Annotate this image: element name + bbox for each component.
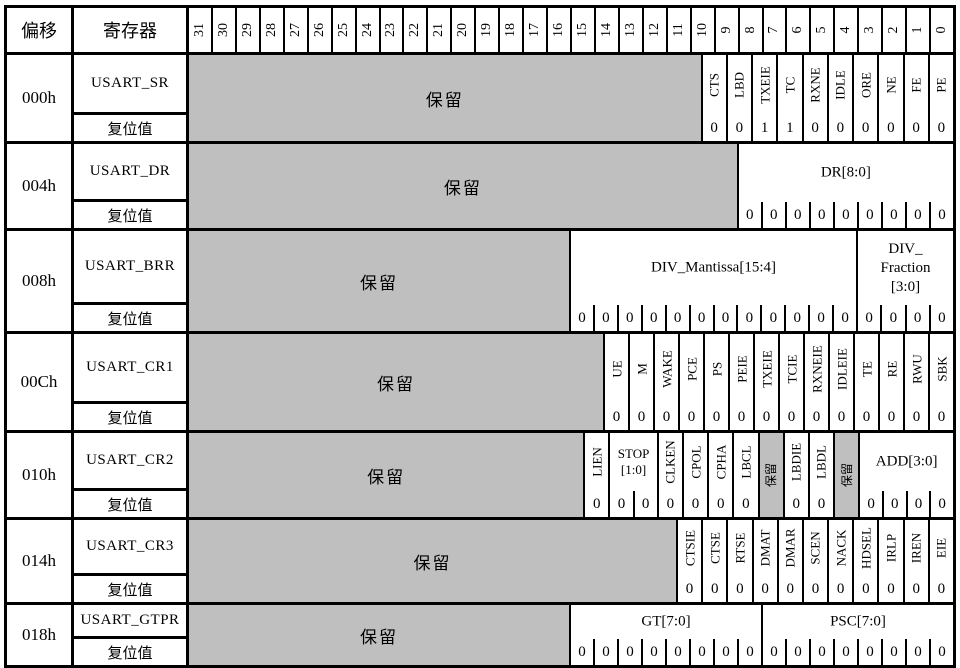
bit-number-cell: 17 <box>522 8 546 52</box>
bit-field-name: DIV_Mantissa[15:4] <box>571 231 856 305</box>
bit-field-reset-row: 0 <box>930 115 953 141</box>
bit-field-name: SCEN <box>804 520 827 576</box>
register-name: USART_CR1 <box>74 334 186 401</box>
reset-value-label: 复位值 <box>74 401 186 430</box>
bit-field-label: LBDIE <box>790 443 803 481</box>
bit-field-label: CTSIE <box>683 530 696 566</box>
register-row: 00ChUSART_CR1复位值保留UE0M0WAKE0PCE0PS0PEIE0… <box>7 331 953 430</box>
bit-fields-area: 保留GT[7:0]00000000PSC[7:0]00000000 <box>189 605 953 665</box>
bit-field-reset-row: 0 <box>905 115 928 141</box>
bit-number-label: 21 <box>432 23 446 37</box>
bit-field-name: TE <box>855 334 878 404</box>
bit-field: 保留 <box>758 433 783 517</box>
reset-bit-value: 0 <box>755 404 778 430</box>
reset-bit-value: 0 <box>857 202 881 228</box>
bit-field-reset-row: 0 <box>804 115 827 141</box>
reset-bit-value: 0 <box>830 404 853 430</box>
bit-field: LBD0 <box>726 55 751 141</box>
reset-bit-value: 0 <box>684 491 707 517</box>
reset-bit-value: 0 <box>881 202 905 228</box>
bit-number-label: 19 <box>480 23 494 37</box>
bit-number-label: 9 <box>720 27 734 34</box>
bit-field-reset-row: 0 <box>810 491 833 517</box>
reset-bit-value: 0 <box>617 639 641 665</box>
bit-number-cell: 1 <box>905 8 929 52</box>
bit-number-cell: 21 <box>426 8 450 52</box>
reserved-label: 保留 <box>189 605 569 665</box>
bit-field-reset-row: 0 <box>855 404 878 430</box>
bit-field-name: STOP [1:0] <box>610 433 656 491</box>
bit-number-label: 22 <box>408 23 422 37</box>
bit-number-label: 8 <box>744 27 758 34</box>
reset-bit-value: 0 <box>929 491 953 517</box>
reset-bit-value: 0 <box>728 576 751 602</box>
register-cell: USART_CR1复位值 <box>74 334 189 430</box>
reset-bit-value: 0 <box>880 404 903 430</box>
register-name: USART_CR2 <box>74 433 186 488</box>
bit-field-name: PE <box>930 55 953 115</box>
reset-bit-value: 0 <box>689 639 713 665</box>
bit-field-name: HDSEL <box>854 520 877 576</box>
reset-bit-value: 0 <box>929 202 953 228</box>
bit-field-reset-row: 0 <box>880 404 903 430</box>
bit-field: UE0 <box>603 334 628 430</box>
bit-field: 保留 <box>833 433 858 517</box>
reset-bit-value: 0 <box>659 491 682 517</box>
bit-number-label: 17 <box>528 23 542 37</box>
offset-cell: 000h <box>7 55 74 141</box>
reset-bit-value: 0 <box>809 202 833 228</box>
bit-field-label: RTSE <box>733 532 746 563</box>
bit-field-name: LBCL <box>734 433 757 491</box>
bit-field: TXEIE1 <box>751 55 776 141</box>
bit-field: DIV_ Fraction [3:0]0000 <box>856 231 953 331</box>
bit-field-reset-row: 00000000 <box>571 639 761 665</box>
bit-field: STOP [1:0]00 <box>608 433 656 517</box>
bit-field-name: CTS <box>703 55 726 115</box>
bit-field-label: TXEIE <box>760 350 773 388</box>
bit-field-name: RTSE <box>728 520 751 576</box>
bit-number-cell: 12 <box>642 8 666 52</box>
bit-field: TCIE0 <box>778 334 803 430</box>
bit-field: IDLEIE0 <box>828 334 853 430</box>
bit-field-name: EIE <box>930 520 953 576</box>
reserved-bit-cell: 保留 <box>835 433 858 517</box>
bit-number-label: 0 <box>935 27 949 34</box>
bit-field-name: TCIE <box>780 334 803 404</box>
bit-number-cell: 29 <box>235 8 259 52</box>
reset-bit-value: 0 <box>571 639 593 665</box>
reset-bit-value: 0 <box>713 639 737 665</box>
register-row: 018hUSART_GTPR复位值保留GT[7:0]00000000PSC[7:… <box>7 602 953 665</box>
reset-bit-value: 0 <box>905 202 929 228</box>
offset-cell: 008h <box>7 231 74 331</box>
register-cell: USART_DR复位值 <box>74 144 189 228</box>
bit-field: PS0 <box>703 334 728 430</box>
bit-field-name: IRLP <box>879 520 902 576</box>
reserved-label: 保留 <box>189 334 603 430</box>
bit-field-label: TXEIE <box>758 66 771 104</box>
bit-field-label: IRLP <box>885 534 898 562</box>
bit-field-reset-row: 1 <box>778 115 801 141</box>
reset-bit-value: 0 <box>930 576 953 602</box>
bit-number-label: 6 <box>791 27 805 34</box>
bit-field-label: GT[7:0] <box>571 613 761 632</box>
bit-field: 保留 <box>189 231 569 331</box>
bit-fields-area: 保留UE0M0WAKE0PCE0PS0PEIE0TXEIE0TCIE0RXNEI… <box>189 334 953 430</box>
bit-field-reset-row: 0000 <box>858 305 953 331</box>
bit-field: LBDIE0 <box>783 433 808 517</box>
bit-number-cell: 26 <box>307 8 331 52</box>
bit-field-name: IDLEIE <box>830 334 853 404</box>
bit-field: PE0 <box>928 55 953 141</box>
bit-number-cell: 13 <box>618 8 642 52</box>
reset-bit-value: 0 <box>905 576 928 602</box>
bit-field-name: LBDIE <box>785 433 808 491</box>
bit-field: CTS0 <box>701 55 726 141</box>
bit-field: DIV_Mantissa[15:4]000000000000 <box>569 231 856 331</box>
bit-field-name: GT[7:0] <box>571 605 761 639</box>
reset-bit-value: 0 <box>736 305 760 331</box>
reset-bit-value: 0 <box>881 639 905 665</box>
bit-field-name: UE <box>605 334 628 404</box>
bit-number-label: 24 <box>361 23 375 37</box>
reset-bit-value: 0 <box>829 115 852 141</box>
bit-field-name: CTSE <box>703 520 726 576</box>
reset-bit-value: 0 <box>678 576 701 602</box>
reset-bit-value: 0 <box>754 576 777 602</box>
bit-field-reset-row: 0 <box>780 404 803 430</box>
bit-field-label: RE <box>885 361 898 378</box>
bit-field: DMAT0 <box>752 520 777 602</box>
reset-bit-value: 0 <box>785 491 808 517</box>
reset-bit-value: 0 <box>630 404 653 430</box>
reset-bit-value: 0 <box>617 305 641 331</box>
bit-field-label: EIE <box>935 538 948 558</box>
bit-field-name: PCE <box>680 334 703 404</box>
reset-bit-value: 0 <box>709 491 732 517</box>
bit-field-reset-row: 0 <box>659 491 682 517</box>
bit-field: ORE0 <box>852 55 877 141</box>
register-cell: USART_CR3复位值 <box>74 520 189 602</box>
bit-field-label: DIV_Mantissa[15:4] <box>571 259 856 278</box>
reset-bit-value: 1 <box>778 115 801 141</box>
reset-bit-value: 0 <box>610 491 632 517</box>
bit-field: ADD[3:0]0000 <box>858 433 953 517</box>
reset-bit-value: 0 <box>703 576 726 602</box>
bit-field-label: RXNE <box>809 67 822 102</box>
bit-number-label: 5 <box>815 27 829 34</box>
reset-bit-value: 0 <box>680 404 703 430</box>
bit-number-cell: 7 <box>762 8 786 52</box>
bit-field: 保留 <box>189 605 569 665</box>
bit-field: 保留 <box>189 520 676 602</box>
register-column-header: 寄存器 <box>74 8 189 52</box>
bit-field: 保留 <box>189 144 737 228</box>
bit-field: SCEN0 <box>802 520 827 602</box>
bit-field-name: TC <box>778 55 801 115</box>
bit-field-reset-row: 0 <box>930 404 953 430</box>
bit-number-cell: 4 <box>833 8 857 52</box>
reset-value-label: 复位值 <box>74 112 186 141</box>
reset-bit-value: 0 <box>784 305 808 331</box>
bit-field-name: SBK <box>930 334 953 404</box>
reset-bit-value: 0 <box>833 202 857 228</box>
bit-field-label: DMAR <box>784 528 797 567</box>
bit-number-label: 31 <box>193 23 207 37</box>
bit-fields-area: 保留DIV_Mantissa[15:4]000000000000DIV_ Fra… <box>189 231 953 331</box>
bit-field-label: ORE <box>859 72 872 98</box>
bit-field-name: LBDL <box>810 433 833 491</box>
bit-field-name: PEIE <box>730 334 753 404</box>
bit-fields-area: 保留DR[8:0]000000000 <box>189 144 953 228</box>
reset-value-label: 复位值 <box>74 636 186 665</box>
bit-number-label: 4 <box>839 27 853 34</box>
bit-field-name: PSC[7:0] <box>763 605 953 639</box>
reset-bit-value: 0 <box>882 491 906 517</box>
bit-field-label: CTS <box>708 73 721 97</box>
bit-field: 保留 <box>189 334 603 430</box>
bit-field-label: SBK <box>935 356 948 381</box>
bit-field-reset-row: 0 <box>905 576 928 602</box>
bit-field: LBCL0 <box>732 433 757 517</box>
reset-value-label: 复位值 <box>74 302 186 331</box>
bit-number-label: 7 <box>767 27 781 34</box>
offset-cell: 010h <box>7 433 74 517</box>
register-cell: USART_BRR复位值 <box>74 231 189 331</box>
bit-field-reset-row: 000000000 <box>739 202 953 228</box>
bit-field-label: TE <box>860 361 873 377</box>
bit-field-reset-row: 0 <box>785 491 808 517</box>
bit-field-name: LIEN <box>585 433 608 491</box>
bit-number-cell: 15 <box>570 8 594 52</box>
reserved-label: 保留 <box>765 463 777 487</box>
bit-field-reset-row: 0 <box>703 576 726 602</box>
bit-field-name: CPHA <box>709 433 732 491</box>
offset-column-header: 偏移 <box>7 8 74 52</box>
reset-bit-value: 0 <box>734 491 757 517</box>
bit-field-label: PS <box>710 362 723 376</box>
reset-bit-value: 1 <box>753 115 776 141</box>
bit-field: RWU0 <box>903 334 928 430</box>
bit-field-reset-row: 0 <box>854 115 877 141</box>
bit-field-name: CLKEN <box>659 433 682 491</box>
reset-bit-value: 0 <box>832 305 856 331</box>
bit-field-reset-row: 0 <box>830 404 853 430</box>
bit-field-label: UE <box>610 360 623 377</box>
bit-number-cell: 20 <box>450 8 474 52</box>
bit-field: EIE0 <box>928 520 953 602</box>
bit-number-cell: 11 <box>666 8 690 52</box>
bit-field-name: CPOL <box>684 433 707 491</box>
bit-field-label: LBCL <box>739 445 752 478</box>
bit-field-reset-row: 1 <box>753 115 776 141</box>
bit-field: RTSE0 <box>726 520 751 602</box>
bit-number-label: 15 <box>576 23 590 37</box>
bit-field-label: LBDL <box>815 445 828 479</box>
bit-field: GT[7:0]00000000 <box>569 605 761 665</box>
reset-bit-value: 0 <box>780 404 803 430</box>
bit-field: M0 <box>628 334 653 430</box>
bit-field-reset-row: 00 <box>610 491 656 517</box>
bit-field-label: TCIE <box>785 355 798 384</box>
reset-bit-value: 0 <box>593 639 617 665</box>
bit-field-reset-row: 0 <box>730 404 753 430</box>
reset-bit-value: 0 <box>737 639 761 665</box>
reset-bit-value: 0 <box>810 491 833 517</box>
reset-bit-value: 0 <box>930 404 953 430</box>
reset-bit-value: 0 <box>804 576 827 602</box>
bit-field: CPOL0 <box>682 433 707 517</box>
bit-field-name: RWU <box>905 334 928 404</box>
register-row: 000hUSART_SR复位值保留CTS0LBD0TXEIE1TC1RXNE0I… <box>7 52 953 141</box>
reset-bit-value: 0 <box>905 305 929 331</box>
bit-number-label: 2 <box>887 27 901 34</box>
bit-number-label: 26 <box>313 23 327 37</box>
bit-field: CLKEN0 <box>657 433 682 517</box>
reset-bit-value: 0 <box>633 491 657 517</box>
reset-bit-value: 0 <box>703 115 726 141</box>
bit-field-name: FE <box>905 55 928 115</box>
bit-field-reset-row: 0 <box>630 404 653 430</box>
bit-field: PCE0 <box>678 334 703 430</box>
bit-field-reset-row: 000000000000 <box>571 305 856 331</box>
bit-field-reset-row: 0 <box>905 404 928 430</box>
bit-number-label: 14 <box>600 23 614 37</box>
reset-bit-value: 0 <box>854 576 877 602</box>
bit-field: FE0 <box>903 55 928 141</box>
register-cell: USART_SR复位值 <box>74 55 189 141</box>
reset-bit-value: 0 <box>689 305 713 331</box>
bit-field-name: DMAT <box>754 520 777 576</box>
bit-fields-area: 保留LIEN0STOP [1:0]00CLKEN0CPOL0CPHA0LBCL0… <box>189 433 953 517</box>
bit-field-label: CPHA <box>714 445 727 480</box>
bit-field-label: STOP [1:0] <box>610 446 656 479</box>
register-name: USART_BRR <box>74 231 186 302</box>
reset-value-label: 复位值 <box>74 573 186 602</box>
bit-field: WAKE0 <box>653 334 678 430</box>
bit-field-reset-row: 0 <box>879 115 902 141</box>
offset-cell: 018h <box>7 605 74 665</box>
bit-number-cell: 2 <box>881 8 905 52</box>
offset-cell: 014h <box>7 520 74 602</box>
bit-fields-area: 保留CTS0LBD0TXEIE1TC1RXNE0IDLE0ORE0NE0FE0P… <box>189 55 953 141</box>
reset-bit-value: 0 <box>804 115 827 141</box>
bit-field-label: PE <box>935 77 948 92</box>
bit-field-reset-row: 0 <box>703 115 726 141</box>
bit-number-cell: 9 <box>714 8 738 52</box>
bit-field: PEIE0 <box>728 334 753 430</box>
reset-bit-value: 0 <box>739 202 761 228</box>
bit-field-reset-row: 0 <box>804 576 827 602</box>
bit-field-reset-row: 0 <box>680 404 703 430</box>
reset-bit-value: 0 <box>930 115 953 141</box>
reset-bit-value: 0 <box>571 305 593 331</box>
bit-number-label: 13 <box>624 23 638 37</box>
reset-bit-value: 0 <box>785 639 809 665</box>
bit-field: RXNE0 <box>802 55 827 141</box>
register-name: USART_DR <box>74 144 186 199</box>
bit-field-name: NACK <box>829 520 852 576</box>
reset-bit-value: 0 <box>906 491 930 517</box>
reset-bit-value: 0 <box>593 305 617 331</box>
reset-bit-value: 0 <box>879 115 902 141</box>
reset-bit-value: 0 <box>905 115 928 141</box>
register-row: 014hUSART_CR3复位值保留CTSIE0CTSE0RTSE0DMAT0D… <box>7 517 953 602</box>
bit-number-cell: 18 <box>498 8 522 52</box>
bit-field-reset-row: 0 <box>930 576 953 602</box>
reset-bit-value: 0 <box>857 639 881 665</box>
bit-field-label: DR[8:0] <box>739 164 953 183</box>
reset-bit-value: 0 <box>808 305 832 331</box>
bit-number-cell: 19 <box>474 8 498 52</box>
bit-field: TE0 <box>853 334 878 430</box>
bit-field: NACK0 <box>827 520 852 602</box>
bit-number-label: 3 <box>863 27 877 34</box>
reset-bit-value: 0 <box>858 305 880 331</box>
bit-field-label: WAKE <box>660 350 673 388</box>
bit-field-reset-row: 0 <box>684 491 707 517</box>
bit-field-reset-row: 00000000 <box>763 639 953 665</box>
bit-number-cell: 6 <box>785 8 809 52</box>
bit-field-label: TC <box>783 77 796 94</box>
bit-field-label: CLKEN <box>664 440 677 483</box>
bit-field: IREN0 <box>903 520 928 602</box>
reset-bit-value: 0 <box>641 305 665 331</box>
bit-field-label: CTSE <box>708 532 721 564</box>
bit-field-label: DMAT <box>759 530 772 567</box>
bit-field-reset-row: 0 <box>829 576 852 602</box>
reset-bit-value: 0 <box>809 639 833 665</box>
bit-field-name: TXEIE <box>753 55 776 115</box>
reset-bit-value: 0 <box>879 576 902 602</box>
reserved-label: 保留 <box>189 144 737 228</box>
reset-bit-value: 0 <box>665 305 689 331</box>
bit-field-reset-row: 0 <box>605 404 628 430</box>
bit-field-reset-row: 0 <box>655 404 678 430</box>
bit-field-name: NE <box>879 55 902 115</box>
bit-field: IDLE0 <box>827 55 852 141</box>
reset-bit-value: 0 <box>905 404 928 430</box>
bit-number-label: 18 <box>504 23 518 37</box>
reset-bit-value: 0 <box>785 202 809 228</box>
reset-bit-value: 0 <box>805 404 828 430</box>
bit-field-reset-row: 0 <box>585 491 608 517</box>
bit-number-label: 20 <box>456 23 470 37</box>
bit-field-label: IREN <box>910 533 923 563</box>
bit-field-name: PS <box>705 334 728 404</box>
reset-bit-value: 0 <box>833 639 857 665</box>
bit-number-label: 30 <box>217 23 231 37</box>
register-row: 004hUSART_DR复位值保留DR[8:0]000000000 <box>7 141 953 228</box>
bit-number-label: 11 <box>672 23 686 36</box>
bit-number-label: 23 <box>384 23 398 37</box>
bit-field-label: PEIE <box>735 355 748 382</box>
reset-value-label: 复位值 <box>74 199 186 228</box>
reset-bit-value: 0 <box>760 305 784 331</box>
bit-field-label: HDSEL <box>859 527 872 569</box>
bit-field-label: LBD <box>733 72 746 98</box>
offset-cell: 00Ch <box>7 334 74 430</box>
register-name: USART_GTPR <box>74 605 186 636</box>
bit-number-cell: 23 <box>379 8 403 52</box>
bit-field-reset-row: 0 <box>779 576 802 602</box>
bit-number-cell: 5 <box>809 8 833 52</box>
reset-bit-value: 0 <box>929 305 953 331</box>
bit-field: TC1 <box>776 55 801 141</box>
register-cell: USART_CR2复位值 <box>74 433 189 517</box>
reset-bit-value: 0 <box>860 491 882 517</box>
